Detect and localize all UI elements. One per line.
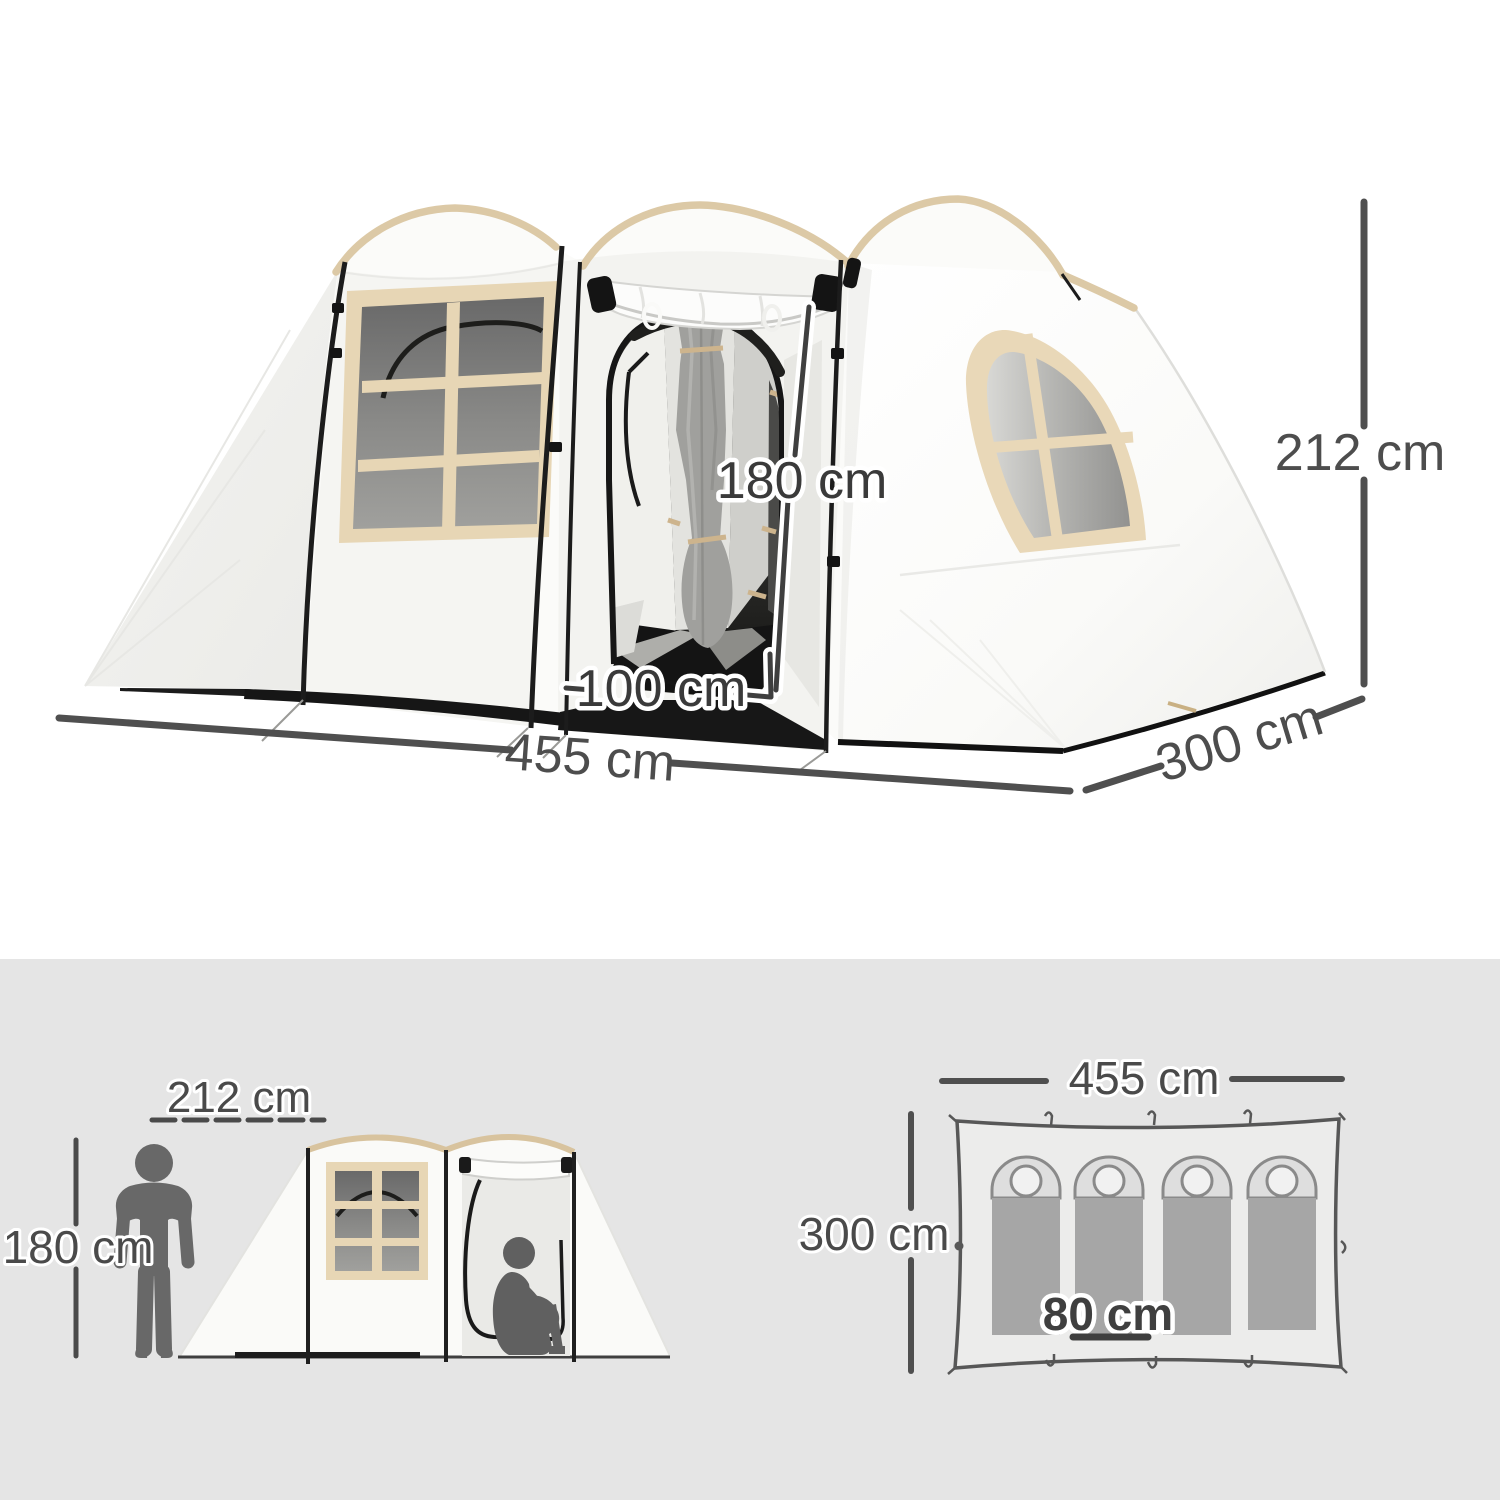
svg-text:80 cm: 80 cm <box>1043 1288 1173 1340</box>
svg-text:180 cm: 180 cm <box>717 452 888 510</box>
svg-text:455 cm: 455 cm <box>1069 1052 1220 1104</box>
svg-text:100 cm: 100 cm <box>576 660 747 718</box>
svg-text:180 cm: 180 cm <box>3 1221 154 1273</box>
svg-text:300 cm: 300 cm <box>799 1208 950 1260</box>
svg-text:455 cm: 455 cm <box>503 723 677 793</box>
svg-text:212 cm: 212 cm <box>1275 424 1446 482</box>
svg-text:212 cm: 212 cm <box>167 1073 311 1122</box>
